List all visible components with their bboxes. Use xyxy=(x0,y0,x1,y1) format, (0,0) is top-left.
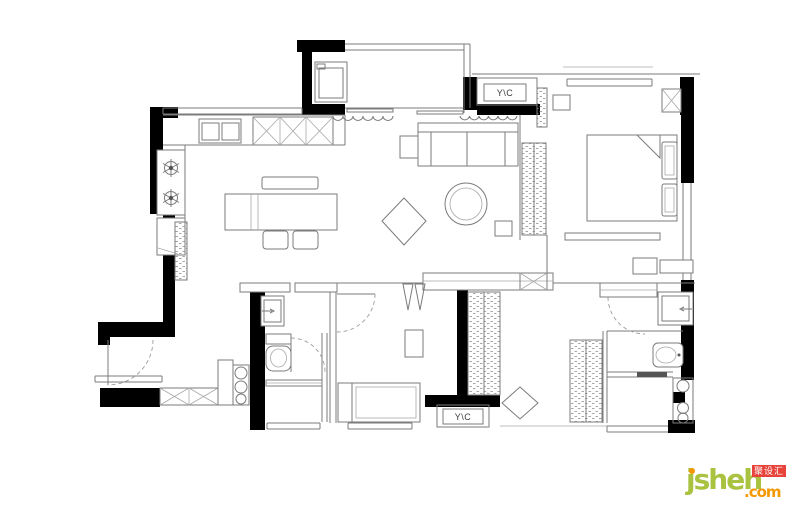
door-jamb-cabinet xyxy=(537,88,547,127)
toilet xyxy=(266,334,291,371)
floor-plan-canvas: Y\C Y\C xyxy=(0,0,800,508)
logo-dot-icon xyxy=(689,468,695,474)
wall-cabinet xyxy=(600,283,657,297)
side-table xyxy=(405,330,423,357)
wardrobe xyxy=(468,292,500,395)
double-bed xyxy=(587,135,677,221)
entry-door xyxy=(108,340,153,385)
bathroom2-door xyxy=(608,297,645,334)
dining-chair xyxy=(263,231,288,249)
bedroom2-door xyxy=(337,294,375,332)
corner-cabinet-x xyxy=(662,89,681,112)
dining-area xyxy=(225,177,337,249)
logo-tld-text: .com xyxy=(744,483,781,501)
daybed xyxy=(338,383,420,422)
ac-platform-top: Y\C xyxy=(477,78,537,105)
living-room xyxy=(382,115,553,290)
ac-label-bottom: Y\C xyxy=(455,412,472,422)
stove xyxy=(157,150,185,215)
rug-diamond-2 xyxy=(502,387,538,419)
hall-cabinet xyxy=(218,360,233,405)
tv-cabinet xyxy=(522,143,546,235)
floor-plan-drawing: Y\C Y\C xyxy=(0,0,800,508)
shelf xyxy=(240,283,290,292)
kitchen-tall-cabinet xyxy=(175,222,187,280)
kitchen-sink xyxy=(199,119,241,143)
vanity-sink-2 xyxy=(658,292,693,325)
sofa xyxy=(400,123,518,166)
bed-end-bench xyxy=(565,233,660,240)
curtain-symbol-2 xyxy=(460,116,517,120)
vanity-sink xyxy=(261,296,284,326)
dining-table xyxy=(225,194,337,230)
rug-diamond xyxy=(382,198,426,245)
floor-threshold xyxy=(266,380,322,386)
shelf-2 xyxy=(295,283,337,292)
hallway-cabinet xyxy=(423,273,553,290)
dresser-2 xyxy=(660,260,693,273)
pipe-shaft-2 xyxy=(233,365,249,405)
curtain-symbol xyxy=(333,116,393,121)
bathroom1-door xyxy=(291,338,325,372)
round-table xyxy=(445,183,487,225)
ac-platform-bottom: Y\C xyxy=(437,405,489,427)
washing-machine xyxy=(315,62,347,102)
folding-rack xyxy=(403,284,425,310)
kitchen-cabinets-x xyxy=(253,117,333,145)
logo-badge: 聚设汇 xyxy=(752,465,786,477)
dining-chair-2 xyxy=(293,231,318,249)
bedroom-2 xyxy=(338,284,425,422)
shoe-cabinet-x xyxy=(160,388,218,405)
doors xyxy=(108,294,645,385)
master-bedroom xyxy=(537,88,693,274)
pillow-2 xyxy=(662,184,677,216)
entry xyxy=(160,360,249,405)
dresser xyxy=(633,258,657,274)
stool xyxy=(495,221,512,236)
watermark-logo: jsheh 聚设汇 .com xyxy=(686,464,794,504)
wardrobe-2 xyxy=(570,340,602,422)
pillow xyxy=(662,142,677,179)
ac-label-top: Y\C xyxy=(497,88,514,98)
bedroom-stool xyxy=(553,95,570,110)
toilet-2 xyxy=(653,343,683,367)
dining-bench xyxy=(262,177,318,189)
